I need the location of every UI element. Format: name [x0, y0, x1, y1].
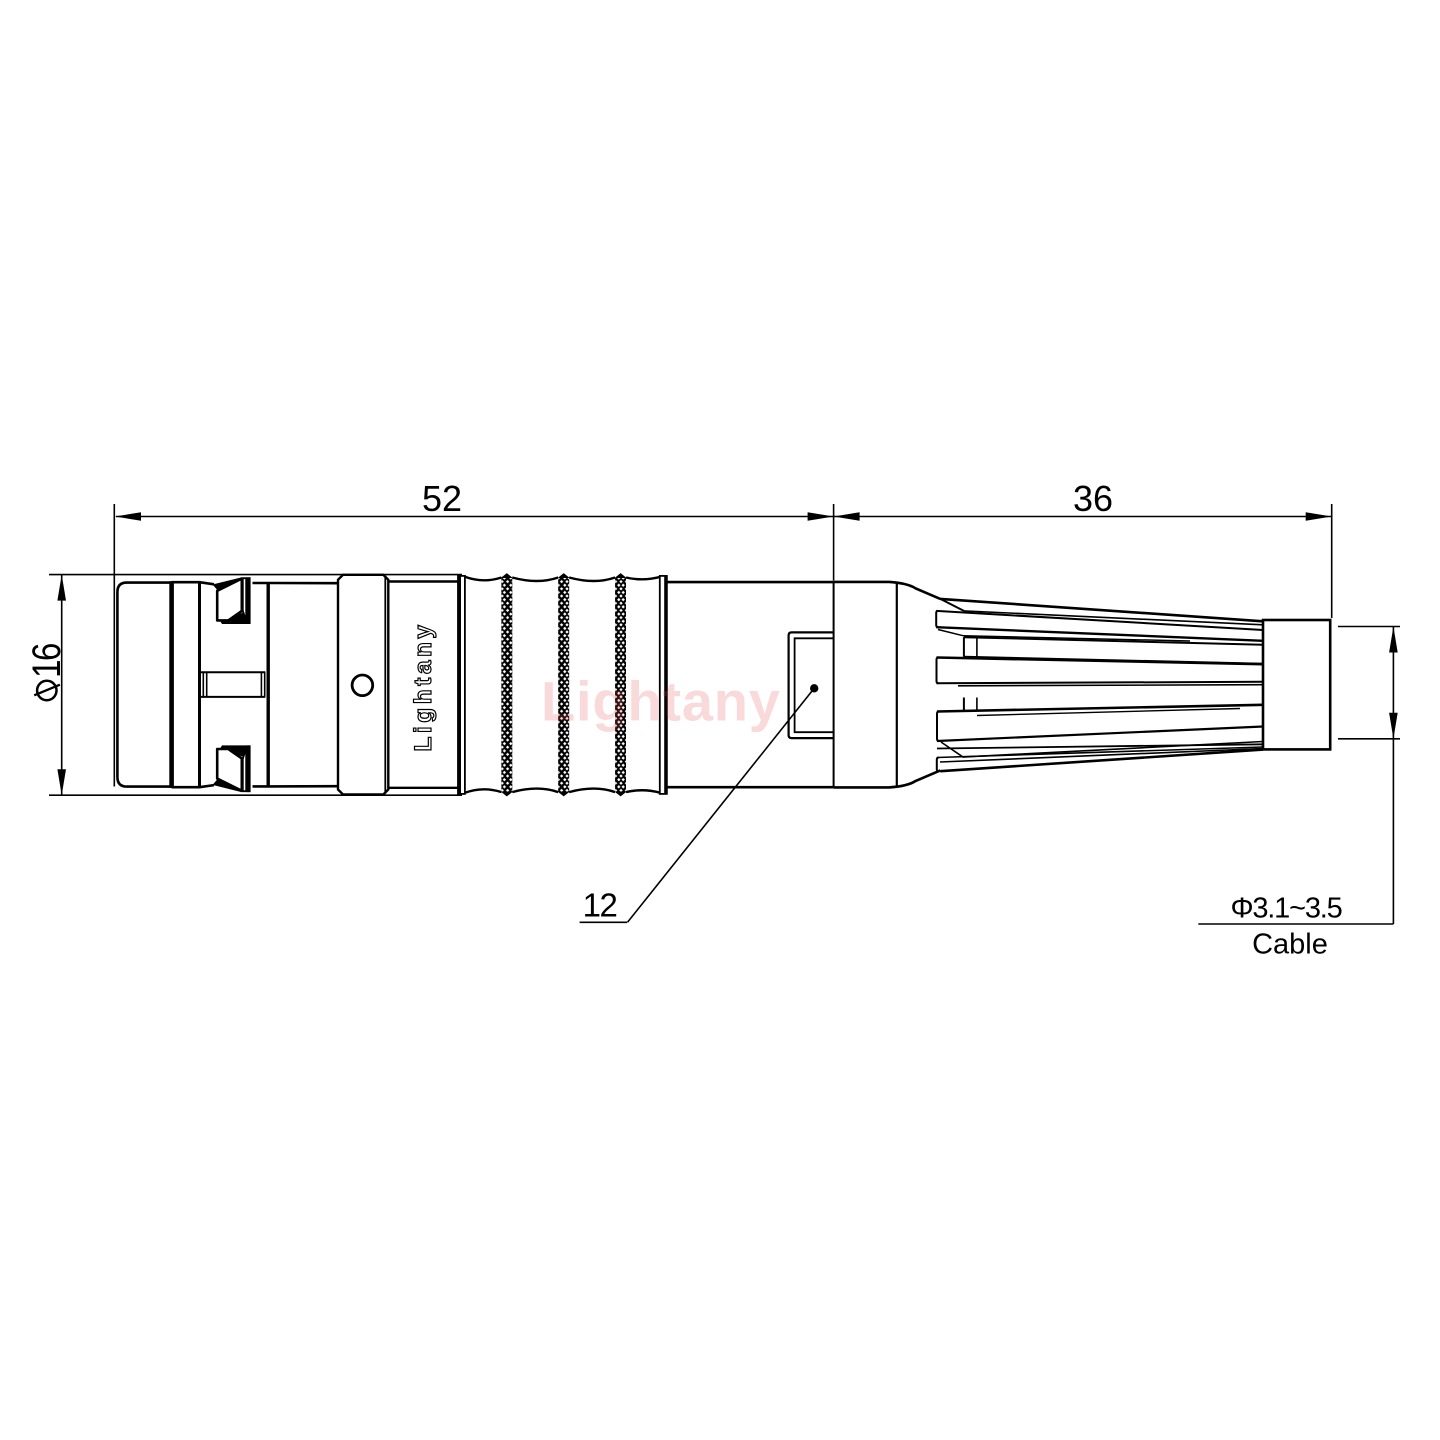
- svg-text:36: 36: [1073, 478, 1113, 519]
- svg-text:Lightany: Lightany: [541, 670, 781, 733]
- svg-text:12: 12: [583, 887, 617, 924]
- svg-text:16: 16: [24, 644, 69, 678]
- svg-text:Cable: Cable: [1252, 929, 1328, 961]
- svg-text:Lightany: Lightany: [410, 621, 437, 751]
- svg-text:52: 52: [422, 478, 462, 519]
- svg-text:Φ3.1~3.5: Φ3.1~3.5: [1230, 892, 1341, 924]
